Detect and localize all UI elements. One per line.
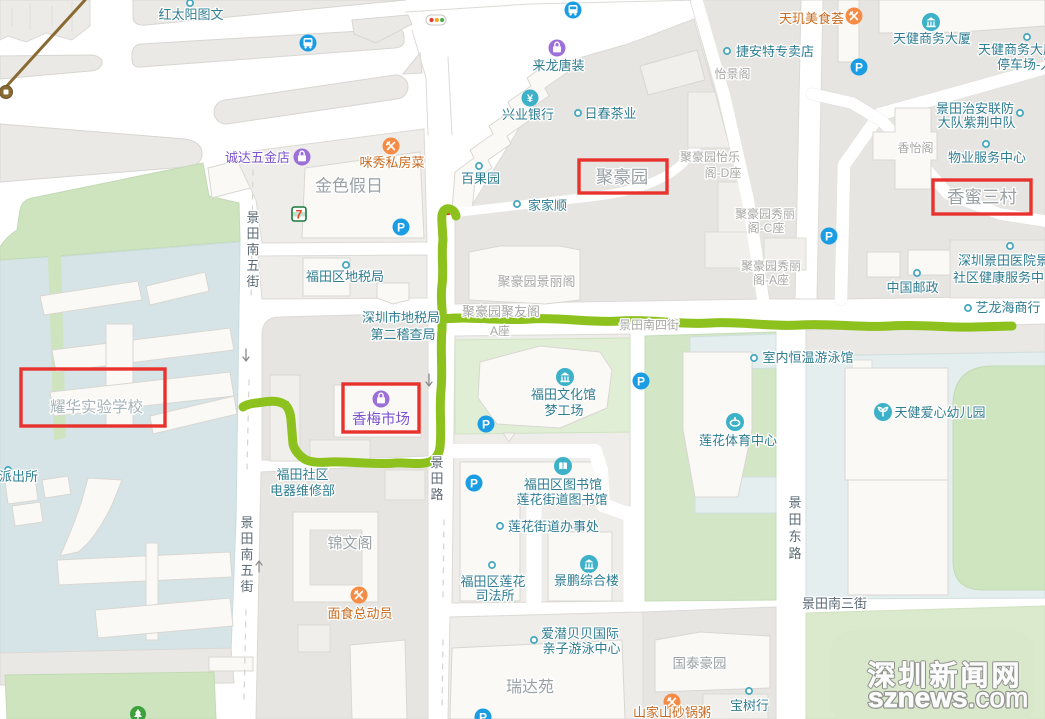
svg-text:怡景阁: 怡景阁 xyxy=(714,65,750,82)
svg-text:中国邮政: 中国邮政 xyxy=(886,277,938,296)
svg-text:物业服务中心: 物业服务中心 xyxy=(948,147,1026,166)
svg-text:A座: A座 xyxy=(490,322,510,339)
svg-text:景田南三街: 景田南三街 xyxy=(802,593,867,612)
svg-text:天健商务大厦: 天健商务大厦 xyxy=(893,28,971,47)
svg-text:大队紫荆中队: 大队紫荆中队 xyxy=(937,112,1015,131)
svg-text:捷安特专卖店: 捷安特专卖店 xyxy=(736,41,814,60)
svg-text:面食总动员: 面食总动员 xyxy=(327,603,392,622)
svg-text:P: P xyxy=(470,476,478,490)
svg-text:瑞达苑: 瑞达苑 xyxy=(506,673,554,697)
svg-text:司法所: 司法所 xyxy=(475,585,514,604)
svg-text:来龙唐装: 来龙唐装 xyxy=(532,55,584,74)
svg-text:红太阳图文: 红太阳图文 xyxy=(158,4,223,23)
svg-text:聚豪园怡乐: 聚豪园怡乐 xyxy=(680,148,740,165)
svg-text:P: P xyxy=(855,60,863,74)
svg-text:宝树行: 宝树行 xyxy=(730,695,769,714)
svg-text:景田南四街: 景田南四街 xyxy=(619,316,679,333)
svg-text:天玑美食荟: 天玑美食荟 xyxy=(779,8,844,27)
svg-text:亲子游泳中心: 亲子游泳中心 xyxy=(542,638,620,657)
svg-text:路: 路 xyxy=(788,543,801,562)
svg-text:P: P xyxy=(482,417,490,431)
svg-text:社区健康服务中: 社区健康服务中 xyxy=(953,267,1044,286)
svg-text:耀华实验学校: 耀华实验学校 xyxy=(50,395,143,417)
svg-text:山家山砂锅粥: 山家山砂锅粥 xyxy=(633,702,711,719)
svg-text:百果园: 百果园 xyxy=(461,168,500,187)
svg-text:香怡阁: 香怡阁 xyxy=(897,139,933,156)
svg-text:家家顺: 家家顺 xyxy=(528,195,567,214)
svg-text:诚达五金店: 诚达五金店 xyxy=(225,147,290,166)
svg-text:国泰豪园: 国泰豪园 xyxy=(673,652,727,672)
svg-text:聚豪园: 聚豪园 xyxy=(596,164,649,189)
svg-text:聚豪园景丽阁: 聚豪园景丽阁 xyxy=(497,271,575,290)
svg-text:香蜜三村: 香蜜三村 xyxy=(947,184,1017,209)
svg-text:天健爱心幼儿园: 天健爱心幼儿园 xyxy=(894,402,985,421)
svg-text:P: P xyxy=(397,220,405,234)
svg-text:福田区地税局: 福田区地税局 xyxy=(306,266,384,285)
svg-text:莲花街道图书馆: 莲花街道图书馆 xyxy=(516,489,607,508)
svg-text:艺龙海商行: 艺龙海商行 xyxy=(975,297,1040,316)
svg-text:街: 街 xyxy=(246,271,259,290)
svg-text:阁-C座: 阁-C座 xyxy=(748,219,785,236)
svg-text:P: P xyxy=(825,229,833,243)
svg-text:sznews.com: sznews.com xyxy=(868,682,1028,713)
svg-text:阁-A座: 阁-A座 xyxy=(753,271,789,288)
svg-text:7: 7 xyxy=(296,208,303,222)
svg-text:锦文阁: 锦文阁 xyxy=(327,532,372,553)
svg-text:金色假日: 金色假日 xyxy=(315,172,383,197)
svg-text:聚豪园聚友阁: 聚豪园聚友阁 xyxy=(462,301,540,320)
svg-text:第二稽查局: 第二稽查局 xyxy=(370,324,435,343)
svg-text:莲花街道办事处: 莲花街道办事处 xyxy=(508,516,599,535)
svg-text:日春茶业: 日春茶业 xyxy=(584,103,636,122)
svg-text:停车场-入: 停车场-入 xyxy=(997,54,1045,73)
svg-text:景鹏综合楼: 景鹏综合楼 xyxy=(554,570,619,589)
svg-text:室内恒温游泳馆: 室内恒温游泳馆 xyxy=(762,347,853,366)
svg-text:梦工场: 梦工场 xyxy=(544,400,583,419)
svg-text:电器维修部: 电器维修部 xyxy=(270,480,335,499)
svg-text:阁-D座: 阁-D座 xyxy=(705,164,742,181)
svg-text:街: 街 xyxy=(240,576,253,595)
svg-text:路: 路 xyxy=(430,484,443,503)
svg-text:P: P xyxy=(637,374,645,388)
svg-text:莲花体育中心: 莲花体育中心 xyxy=(699,430,777,449)
svg-text:P: P xyxy=(479,710,487,719)
svg-text:兴业银行: 兴业银行 xyxy=(502,104,554,123)
svg-text:田派出所: 田派出所 xyxy=(0,466,38,485)
svg-text:香梅市场: 香梅市场 xyxy=(352,408,410,429)
svg-text:咪秀私房菜: 咪秀私房菜 xyxy=(359,152,424,171)
